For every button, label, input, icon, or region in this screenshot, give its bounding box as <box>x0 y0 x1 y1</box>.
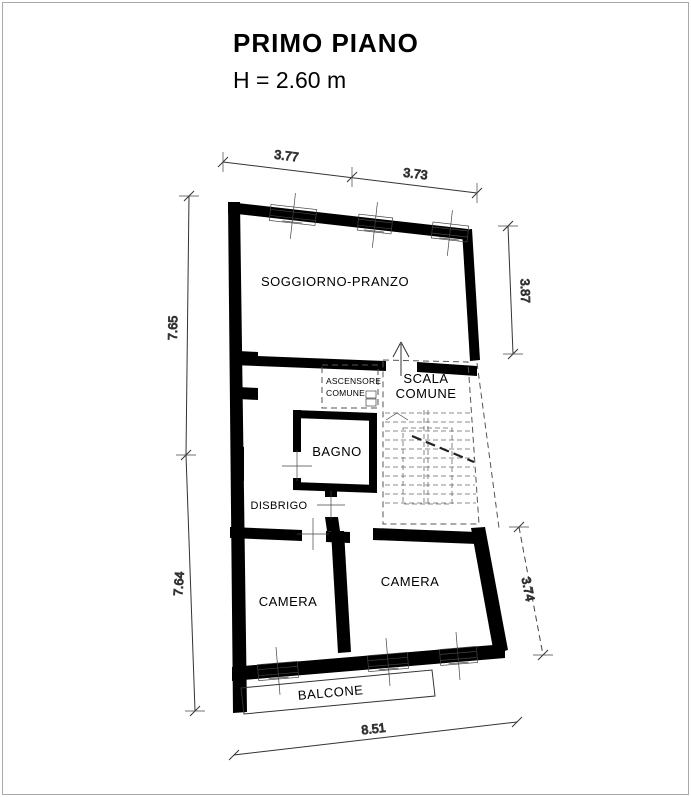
room-label-disbrigo: DISBRIGO <box>251 500 308 512</box>
wall-stub-corridor-1 <box>238 351 258 362</box>
dim-left: 7.65 7.64 <box>166 191 205 716</box>
room-label-soggiorno: SOGGIORNO-PRANZO <box>261 274 409 289</box>
room-label-bagno: BAGNO <box>312 444 361 459</box>
room-label-camera-left: CAMERA <box>259 594 318 609</box>
wall-disbrigo-right-lower <box>325 517 340 531</box>
page-title: PRIMO PIANO <box>233 28 419 58</box>
room-label-scala-line2: COMUNE <box>396 386 457 401</box>
wall-bagno-top <box>293 410 377 421</box>
dim-label-right-2: 3.74 <box>519 576 537 603</box>
wall-right-upper <box>462 229 480 361</box>
staircase: SCALA COMUNE <box>383 360 499 528</box>
dim-label-bottom-1: 8.51 <box>361 721 387 738</box>
dim-label-top-1: 3.77 <box>274 148 300 165</box>
dim-top: 3.77 3.73 <box>218 148 482 203</box>
wall-stub-corridor-2 <box>238 387 258 400</box>
wall-right-lower <box>471 527 508 654</box>
wall-left-pier <box>231 447 244 481</box>
wall-bagno-left-upper <box>293 410 301 452</box>
dim-label-right-1: 3.87 <box>518 278 533 303</box>
stairs-center-divider <box>424 410 428 504</box>
dim-bottom: 8.51 <box>229 717 522 760</box>
wall-bagno-right <box>369 413 377 490</box>
dim-right-lower: 3.74 <box>509 522 553 660</box>
dim-label-top-2: 3.73 <box>403 166 429 183</box>
stairs-up-chevron-icon <box>386 413 408 420</box>
dim-right-upper: 3.87 <box>498 221 532 359</box>
ceiling-height-label: H = 2.60 m <box>233 67 346 93</box>
room-label-ascensore-line2: COMUNE <box>326 388 365 398</box>
door-tick-camera-left <box>297 518 329 550</box>
door-tick-camera-right <box>317 491 345 519</box>
room-label-scala-line1: SCALA <box>403 371 448 386</box>
floor-plan-svg: PRIMO PIANO H = 2.60 m <box>0 0 691 797</box>
stairs-exterior-dashed-edge <box>477 363 499 528</box>
wall-camera-divider <box>331 531 351 653</box>
dim-label-left-1: 7.65 <box>166 316 180 341</box>
floor-plan-page: PRIMO PIANO H = 2.60 m <box>0 0 691 797</box>
wall-camera-right-top <box>373 528 477 544</box>
door-tick-bagno <box>282 450 312 481</box>
room-label-camera-right: CAMERA <box>381 574 440 589</box>
room-label-ascensore-line1: ASCENSORE <box>326 376 381 386</box>
elevator-box: ASCENSORE COMUNE <box>322 365 381 408</box>
dim-label-left-2: 7.64 <box>171 571 187 596</box>
wall-top <box>228 202 468 240</box>
room-label-balcone: BALCONE <box>297 682 364 703</box>
stairs-inner-rail <box>403 428 452 504</box>
